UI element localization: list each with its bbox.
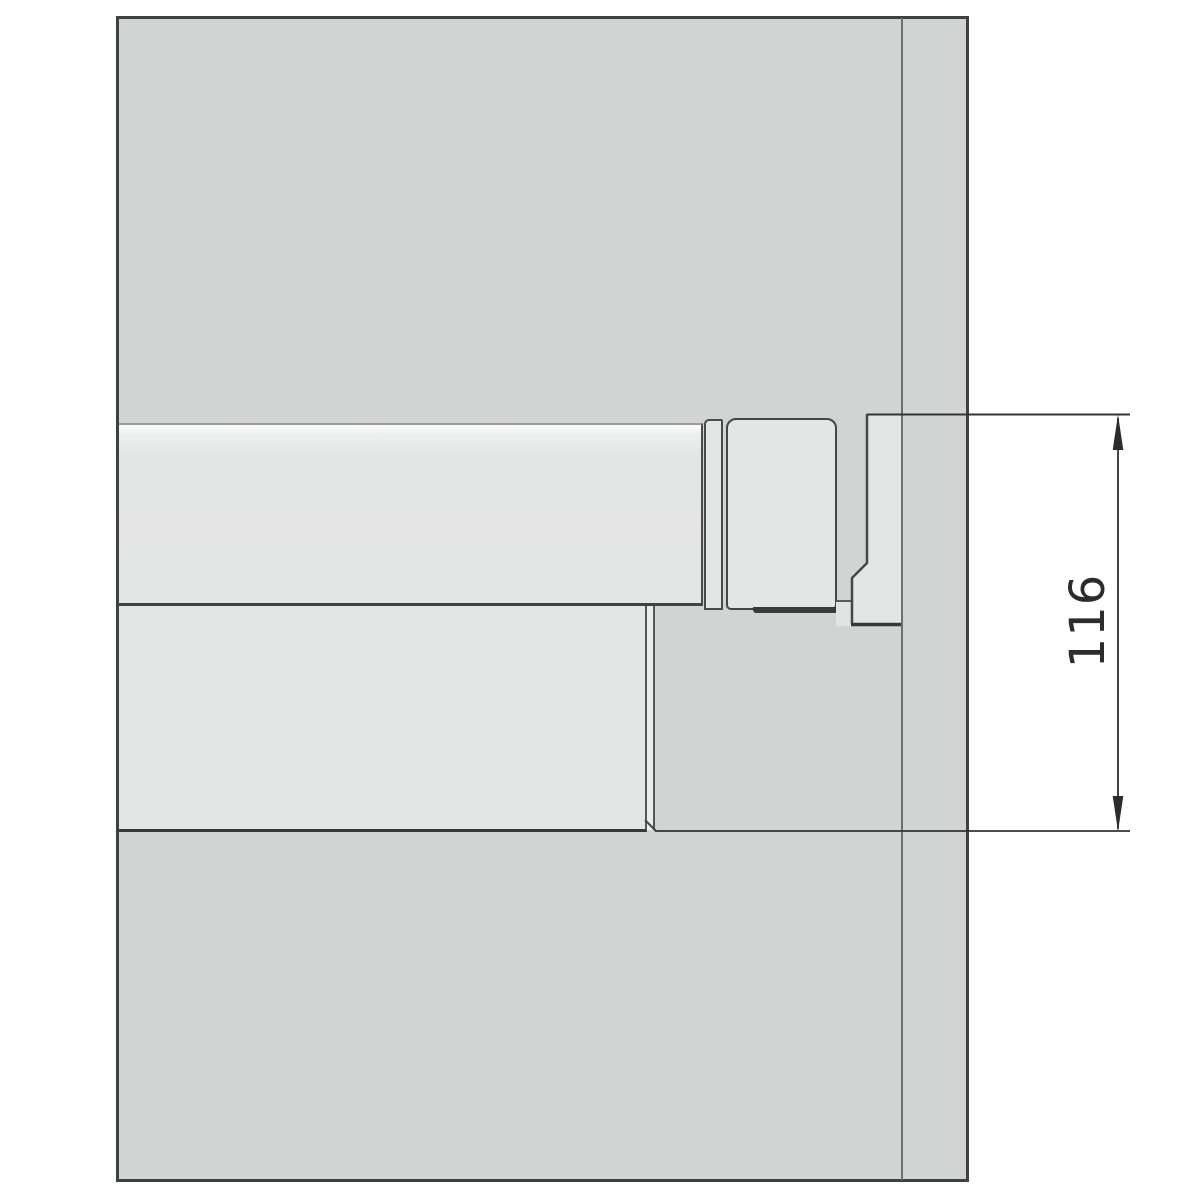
drawer-side-lower [119, 606, 647, 832]
slide-connector-line [836, 600, 853, 602]
drawer-side-edge-line [653, 606, 655, 830]
slide-connector-strip [704, 419, 723, 610]
dimension-value-label: 116 [1063, 561, 1113, 681]
dimension-arrow-up-icon [1113, 415, 1124, 451]
technical-drawing-canvas: 116 [0, 0, 1200, 1200]
dimension-arrow-down-icon [1113, 796, 1124, 832]
slide-connector-fill [836, 602, 853, 626]
drawer-rail-upper [119, 423, 703, 606]
slide-block-underline [753, 607, 838, 613]
slide-front-block [726, 418, 837, 610]
